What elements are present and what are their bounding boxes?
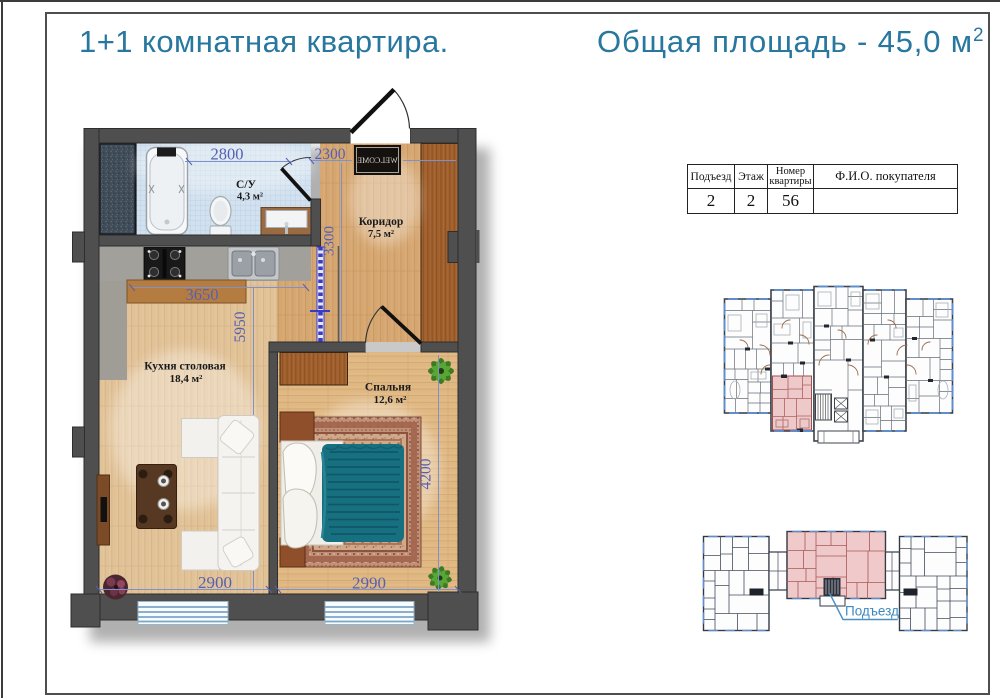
svg-text:18,4 м²: 18,4 м² <box>170 373 203 385</box>
svg-text:3300: 3300 <box>322 226 338 256</box>
svg-text:5950: 5950 <box>232 311 249 342</box>
svg-text:2800: 2800 <box>211 145 244 164</box>
svg-text:12,6 м²: 12,6 м² <box>374 394 407 406</box>
svg-text:Подъезд: Подъезд <box>845 604 899 619</box>
svg-text:2300: 2300 <box>315 146 346 163</box>
svg-text:WELCOME: WELCOME <box>357 156 398 165</box>
svg-text:Коридор: Коридор <box>359 216 404 228</box>
svg-text:2900: 2900 <box>198 573 232 592</box>
svg-text:3650: 3650 <box>186 285 219 304</box>
svg-text:7,5 м²: 7,5 м² <box>368 229 394 240</box>
svg-text:Спальня: Спальня <box>365 382 411 394</box>
svg-text:4200: 4200 <box>418 458 435 489</box>
svg-text:4,3 м²: 4,3 м² <box>237 192 263 203</box>
svg-text:Кухня столовая: Кухня столовая <box>144 361 226 373</box>
svg-text:С/У: С/У <box>236 179 257 191</box>
svg-text:2990: 2990 <box>352 574 386 593</box>
